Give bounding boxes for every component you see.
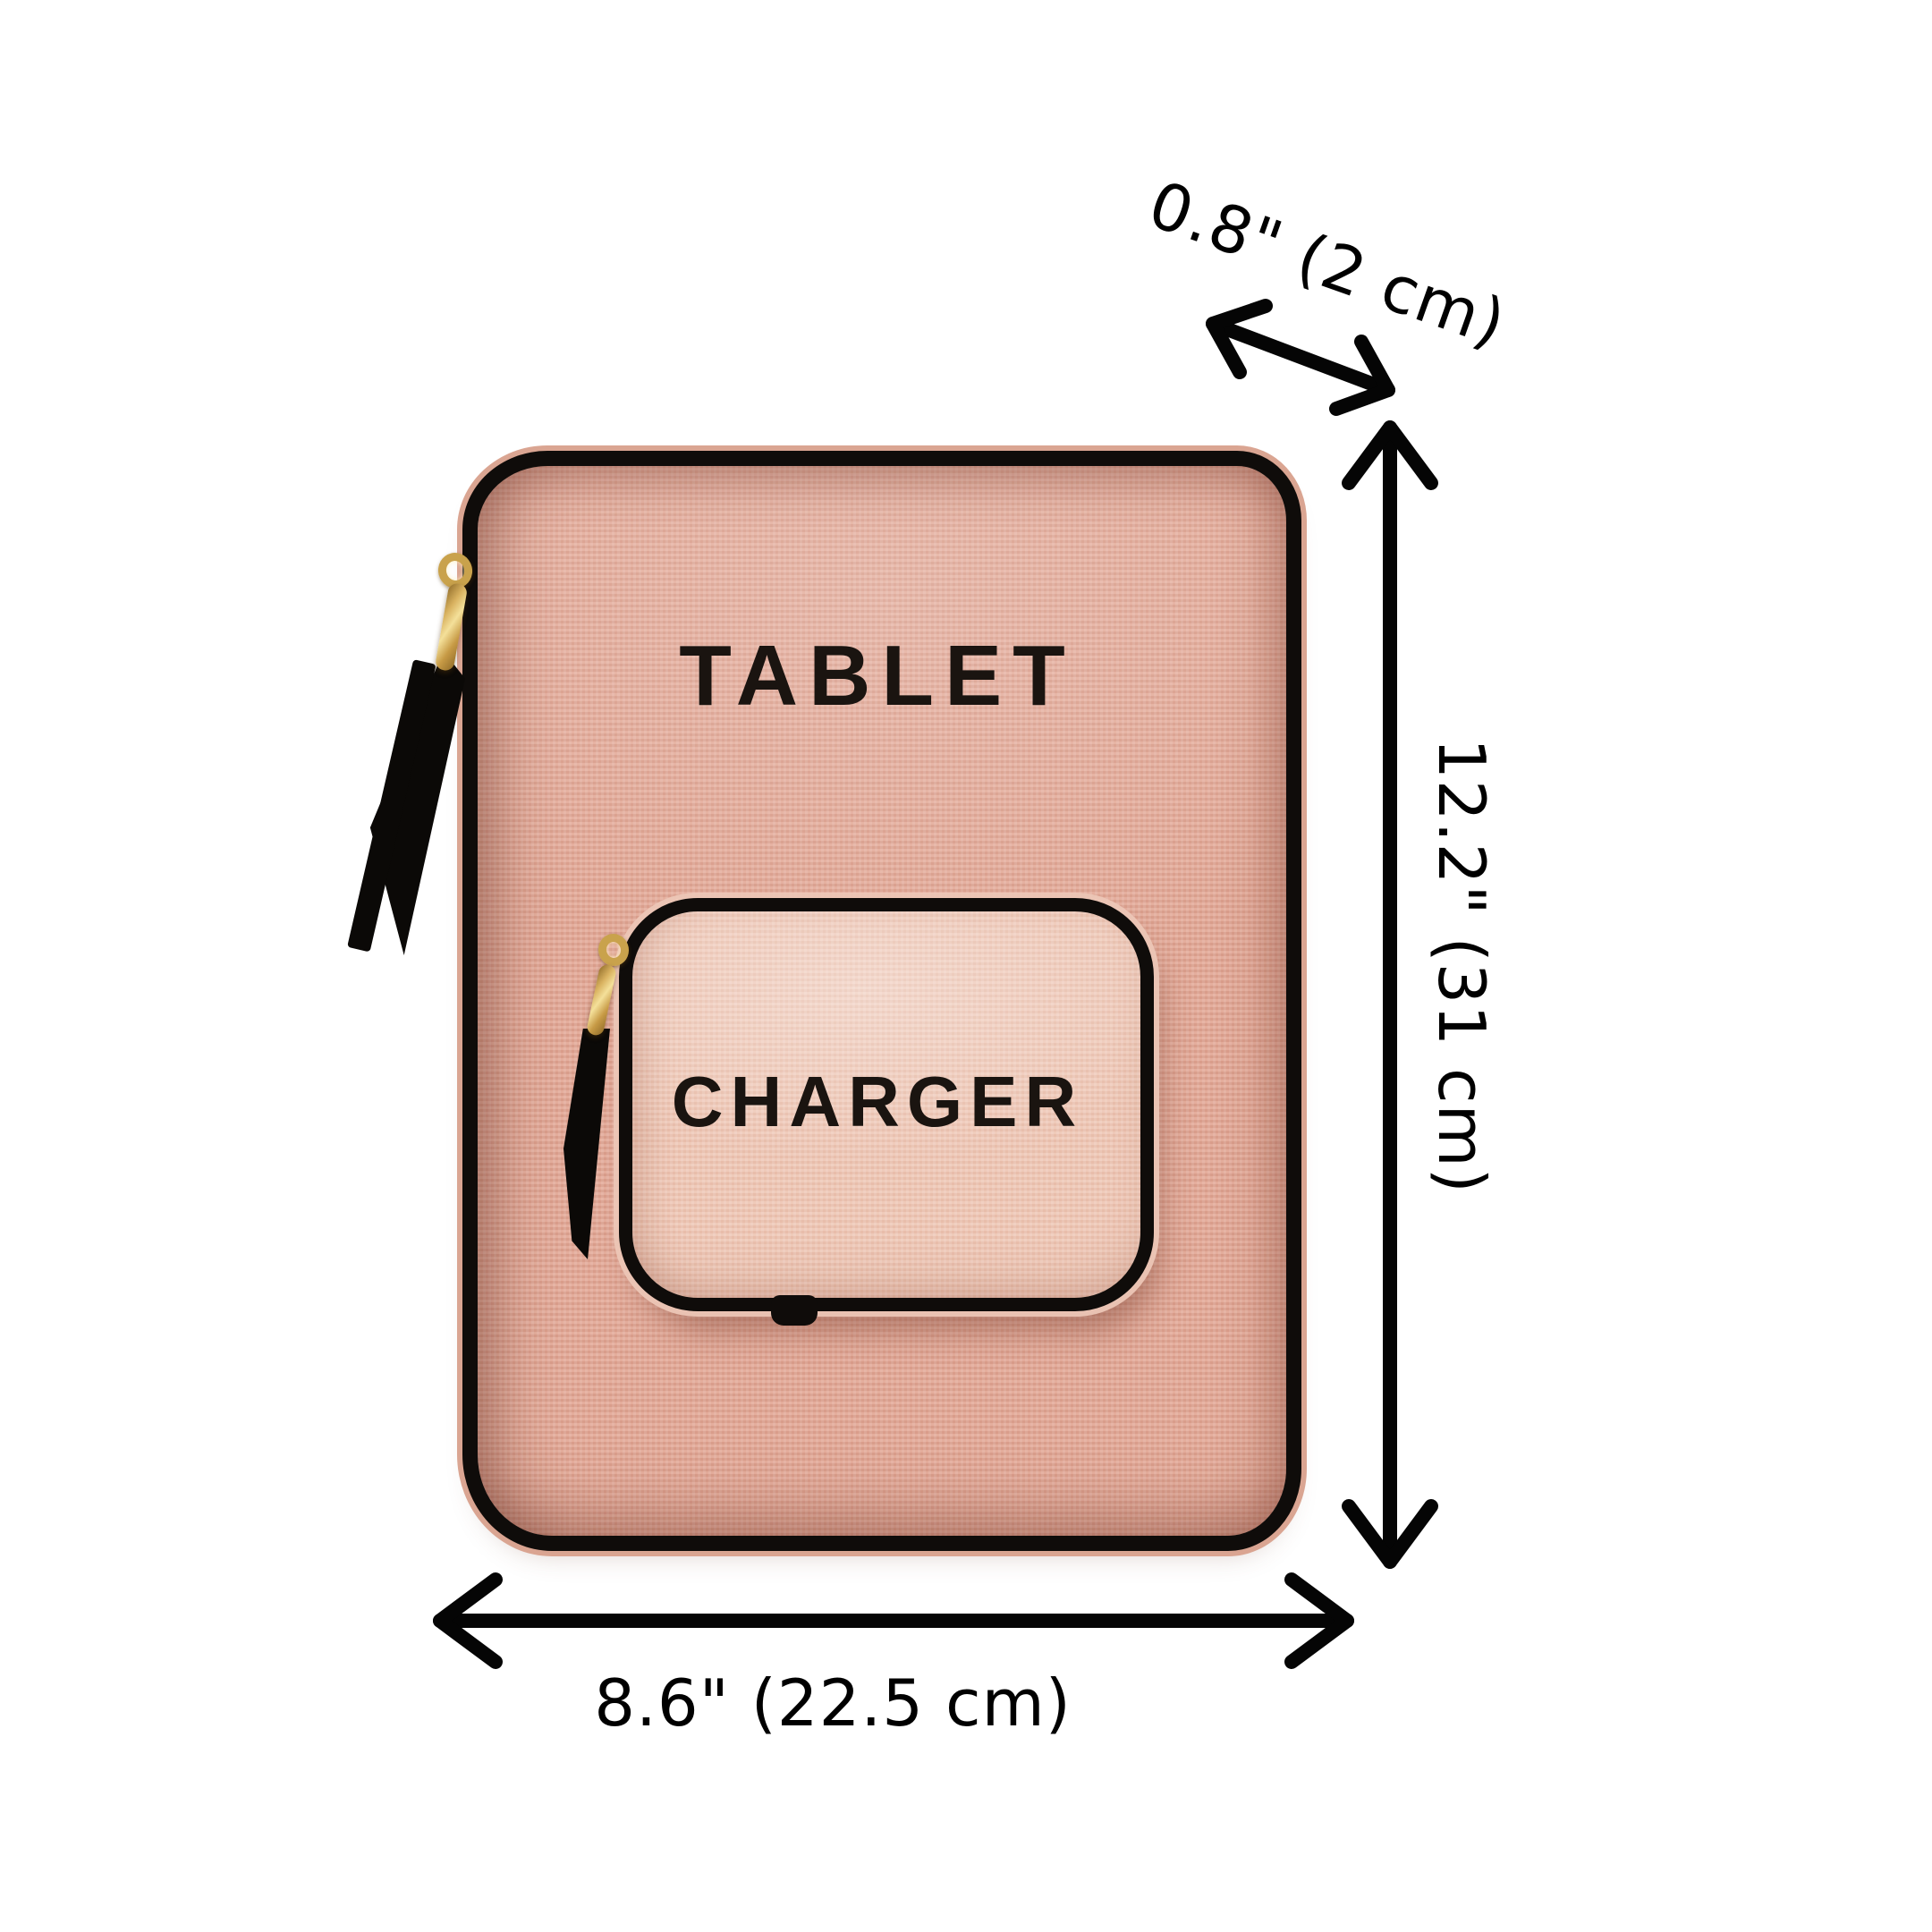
width-dimension-label: 8.6" (22.5 cm) (594, 1665, 1072, 1741)
height-dimension-label: 12.2" (31 cm) (1412, 716, 1511, 1216)
width-arrow-icon (440, 1580, 1347, 1662)
dimension-arrows (0, 0, 1932, 1932)
depth-arrow-icon (1213, 306, 1388, 409)
product-dimension-diagram: TABLET CHARGER 0.8" (2 cm) 12.2" (31 cm)… (0, 0, 1932, 1932)
